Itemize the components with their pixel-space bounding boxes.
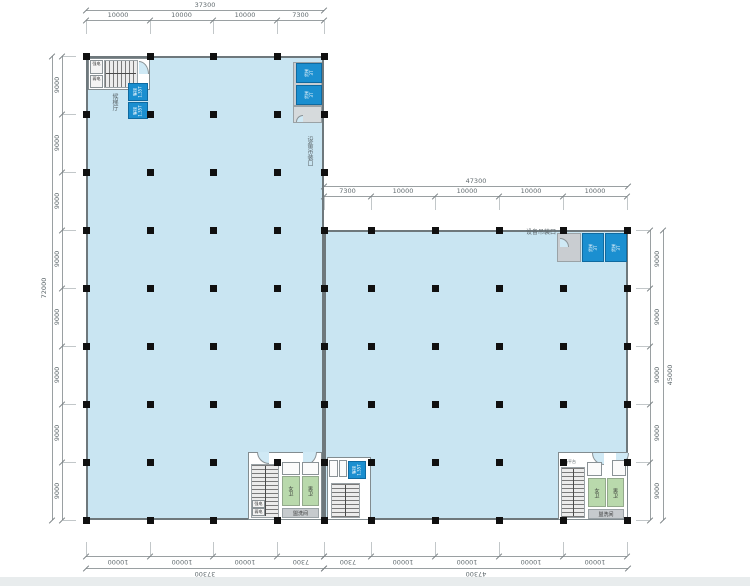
- structural-column: [274, 517, 281, 524]
- structural-column: [210, 401, 217, 408]
- structural-column: [321, 111, 328, 118]
- structural-column: [274, 227, 281, 234]
- structural-column: [274, 343, 281, 350]
- structural-column: [321, 53, 328, 60]
- elevator-capacity-label: 3T: [309, 69, 314, 77]
- dimension-value: 10000: [158, 558, 206, 566]
- dimension-line: [650, 230, 651, 520]
- dimension-value: 72000: [40, 268, 48, 308]
- dimension-witness-line: [324, 21, 325, 34]
- dimension-value: 10000: [221, 11, 269, 19]
- dimension-witness-line: [324, 197, 325, 210]
- structural-column: [83, 517, 90, 524]
- passenger-elevator: 客梯1.35T: [348, 461, 366, 479]
- washroom-bar: 盥洗间: [588, 509, 624, 519]
- electrical-room-label: 强电: [255, 501, 263, 506]
- structural-column: [368, 285, 375, 292]
- dimension-value: 45000: [666, 355, 674, 395]
- toilet-label: 女卫: [288, 486, 295, 496]
- closet: [329, 460, 338, 477]
- structural-column: [496, 401, 503, 408]
- dimension-value: 10000: [443, 187, 491, 195]
- dimension-value: 9000: [53, 65, 61, 105]
- closet: [339, 460, 347, 477]
- viewer-bottom-bar: [0, 577, 750, 586]
- structural-column: [321, 227, 328, 234]
- dimension-witness-line: [150, 21, 151, 34]
- dimension-witness-line: [63, 172, 76, 173]
- dimension-value: 7300: [324, 187, 372, 195]
- dimension-value: 10000: [94, 11, 142, 19]
- closet: [587, 462, 602, 476]
- closet: [282, 462, 300, 475]
- electrical-room: 弱电: [90, 75, 103, 88]
- structural-column: [624, 343, 631, 350]
- structural-column: [321, 459, 328, 466]
- dimension-value: 7300: [277, 558, 325, 566]
- stair-rail: [265, 466, 266, 516]
- structural-column: [147, 169, 154, 176]
- structural-column: [496, 227, 503, 234]
- structural-column: [210, 111, 217, 118]
- structural-column: [432, 343, 439, 350]
- toilet-room-male: 男卫: [607, 478, 624, 507]
- dimension-value: 10000: [379, 187, 427, 195]
- left-wing-floor: [86, 56, 324, 520]
- structural-column: [432, 401, 439, 408]
- dimension-line: [324, 568, 628, 569]
- closet: [302, 462, 319, 475]
- dimension-witness-line: [277, 21, 278, 34]
- dimension-witness-line: [63, 114, 76, 115]
- dimension-tick: [49, 517, 55, 523]
- structural-column: [368, 459, 375, 466]
- toilet-label: 男卫: [307, 486, 314, 496]
- structural-column: [147, 53, 154, 60]
- dimension-witness-line: [499, 197, 500, 210]
- dimension-witness-line: [277, 542, 278, 555]
- structural-column: [496, 459, 503, 466]
- dimension-line: [86, 20, 324, 21]
- structural-column: [274, 401, 281, 408]
- dimension-witness-line: [86, 542, 87, 555]
- stair-rail: [106, 73, 136, 74]
- dimension-witness-line: [63, 288, 76, 289]
- structural-column: [83, 343, 90, 350]
- elevator-capacity-label: 3T: [309, 91, 314, 99]
- dimension-witness-line: [563, 542, 564, 555]
- stair-rail: [345, 485, 346, 516]
- toilet-room-female: 女卫: [282, 476, 300, 506]
- structural-column: [624, 227, 631, 234]
- dimension-witness-line: [563, 197, 564, 210]
- toilet-label: 男卫: [612, 488, 619, 498]
- structural-column: [321, 343, 328, 350]
- floor-plan-drawing: 强电 弱电 客梯1.35T 客梯1.35T 候梯厅 货梯3T 货梯3T 设备吊装…: [0, 0, 750, 586]
- dimension-line: [663, 230, 664, 520]
- structural-column: [83, 285, 90, 292]
- dimension-value: 9000: [53, 297, 61, 337]
- dimension-witness-line: [636, 346, 649, 347]
- structural-column: [321, 169, 328, 176]
- dimension-value: 7300: [324, 558, 372, 566]
- dimension-value: 9000: [653, 413, 661, 453]
- electrical-room: 弱电: [252, 508, 265, 516]
- structural-column: [432, 227, 439, 234]
- dimension-witness-line: [627, 197, 628, 210]
- structural-column: [624, 517, 631, 524]
- passenger-elevator: 客梯1.35T: [128, 83, 148, 101]
- structural-column: [147, 227, 154, 234]
- electrical-room-label: 弱电: [255, 509, 263, 514]
- dimension-value: 10000: [507, 558, 555, 566]
- freight-elevator: 货梯3T: [296, 63, 322, 83]
- structural-column: [496, 285, 503, 292]
- dimension-value: 7300: [277, 11, 325, 19]
- dimension-witness-line: [213, 542, 214, 555]
- structural-column: [83, 227, 90, 234]
- structural-column: [560, 459, 567, 466]
- structural-column: [368, 227, 375, 234]
- dimension-value: 10000: [443, 558, 491, 566]
- structural-column: [147, 459, 154, 466]
- structural-column: [274, 111, 281, 118]
- structural-column: [210, 227, 217, 234]
- dimension-value: 9000: [653, 239, 661, 279]
- dimension-witness-line: [213, 21, 214, 34]
- structural-column: [368, 517, 375, 524]
- structural-column: [368, 401, 375, 408]
- structural-column: [432, 285, 439, 292]
- structural-column: [210, 517, 217, 524]
- structural-column: [560, 343, 567, 350]
- electrical-room: 强电: [252, 500, 265, 508]
- washroom-bar: 盥洗间: [282, 508, 319, 518]
- dimension-witness-line: [499, 542, 500, 555]
- structural-column: [274, 459, 281, 466]
- dimension-value: 9000: [653, 355, 661, 395]
- dimension-value: 9000: [53, 181, 61, 221]
- hoist-opening-label: 设备吊装口: [305, 136, 314, 166]
- washroom-label: 盥洗间: [293, 510, 308, 517]
- structural-column: [321, 517, 328, 524]
- dimension-witness-line: [627, 542, 628, 555]
- dimension-value: 10000: [221, 558, 269, 566]
- toilet-label: 女卫: [594, 488, 601, 498]
- electrical-room: 强电: [90, 60, 103, 74]
- dimension-witness-line: [63, 462, 76, 463]
- dimension-value: 9000: [53, 355, 61, 395]
- dimension-witness-line: [63, 520, 76, 521]
- structural-column: [83, 53, 90, 60]
- dimension-value: 37300: [181, 1, 229, 9]
- elevator-lobby-label: 候梯厅: [110, 93, 119, 111]
- dimension-witness-line: [636, 288, 649, 289]
- dimension-value: 10000: [379, 558, 427, 566]
- structural-column: [624, 285, 631, 292]
- structural-column: [83, 459, 90, 466]
- structural-column: [210, 343, 217, 350]
- structural-column: [147, 111, 154, 118]
- structural-column: [83, 111, 90, 118]
- dimension-value: 9000: [653, 471, 661, 511]
- dimension-witness-line: [371, 197, 372, 210]
- structural-column: [274, 285, 281, 292]
- electrical-room-label: 弱电: [93, 76, 101, 81]
- washroom-label: 盥洗间: [598, 511, 613, 518]
- structural-column: [321, 401, 328, 408]
- dimension-witness-line: [636, 404, 649, 405]
- freight-elevator: 货梯3T: [582, 233, 604, 262]
- passenger-elevator: 客梯1.35T: [128, 102, 148, 119]
- dimension-witness-line: [636, 462, 649, 463]
- structural-column: [624, 459, 631, 466]
- dimension-witness-line: [324, 542, 325, 555]
- structural-column: [560, 285, 567, 292]
- dimension-witness-line: [86, 21, 87, 34]
- dimension-value: 10000: [158, 11, 206, 19]
- dimension-witness-line: [371, 542, 372, 555]
- dimension-value: 9000: [53, 413, 61, 453]
- dimension-tick: [625, 183, 631, 189]
- structural-column: [147, 517, 154, 524]
- freight-elevator: 货梯3T: [296, 85, 322, 105]
- structural-column: [496, 343, 503, 350]
- structural-column: [147, 401, 154, 408]
- structural-column: [147, 343, 154, 350]
- toilet-room-female: 女卫: [588, 478, 606, 507]
- dimension-witness-line: [150, 542, 151, 555]
- dimension-witness-line: [636, 520, 649, 521]
- dimension-value: 47300: [452, 177, 500, 185]
- dimension-value: 10000: [571, 187, 619, 195]
- dimension-witness-line: [63, 346, 76, 347]
- elevator-capacity-label: 3T: [616, 244, 621, 252]
- structural-column: [210, 169, 217, 176]
- dimension-line: [86, 10, 324, 11]
- hoist-opening-label: 设备吊装口: [516, 227, 556, 236]
- structural-column: [274, 53, 281, 60]
- dimension-tick: [625, 565, 631, 571]
- dimension-line: [324, 186, 628, 187]
- elevator-capacity-label: 1.35T: [357, 464, 362, 475]
- structural-column: [210, 53, 217, 60]
- structural-column: [83, 169, 90, 176]
- elevator-capacity-label: 1.35T: [138, 105, 143, 116]
- dimension-value: 9000: [53, 123, 61, 163]
- dimension-tick: [660, 517, 666, 523]
- structural-column: [321, 285, 328, 292]
- freight-elevator: 货梯3T: [605, 233, 627, 262]
- stair-rail: [573, 469, 574, 516]
- structural-column: [560, 227, 567, 234]
- structural-column: [274, 169, 281, 176]
- dimension-witness-line: [63, 404, 76, 405]
- structural-column: [147, 285, 154, 292]
- dimension-witness-line: [63, 56, 76, 57]
- structural-column: [432, 459, 439, 466]
- dimension-value: 9000: [53, 471, 61, 511]
- dimension-witness-line: [435, 197, 436, 210]
- structural-column: [560, 401, 567, 408]
- dimension-value: 10000: [571, 558, 619, 566]
- dimension-value: 10000: [94, 558, 142, 566]
- structural-column: [496, 517, 503, 524]
- dimension-value: 9000: [653, 297, 661, 337]
- dimension-witness-line: [636, 230, 649, 231]
- elevator-capacity-label: 3T: [593, 244, 598, 252]
- dimension-line: [52, 56, 53, 520]
- electrical-room-label: 强电: [93, 61, 101, 66]
- elevator-capacity-label: 1.35T: [138, 86, 143, 97]
- structural-column: [624, 401, 631, 408]
- dimension-line: [86, 556, 324, 557]
- structural-column: [210, 459, 217, 466]
- structural-column: [83, 401, 90, 408]
- dimension-value: 9000: [53, 239, 61, 279]
- dimension-line: [86, 568, 324, 569]
- dimension-value: 10000: [507, 187, 555, 195]
- toilet-room-male: 男卫: [302, 476, 319, 506]
- structural-column: [210, 285, 217, 292]
- dimension-witness-line: [63, 230, 76, 231]
- structural-column: [432, 517, 439, 524]
- structural-column: [368, 343, 375, 350]
- structural-column: [560, 517, 567, 524]
- dimension-witness-line: [435, 542, 436, 555]
